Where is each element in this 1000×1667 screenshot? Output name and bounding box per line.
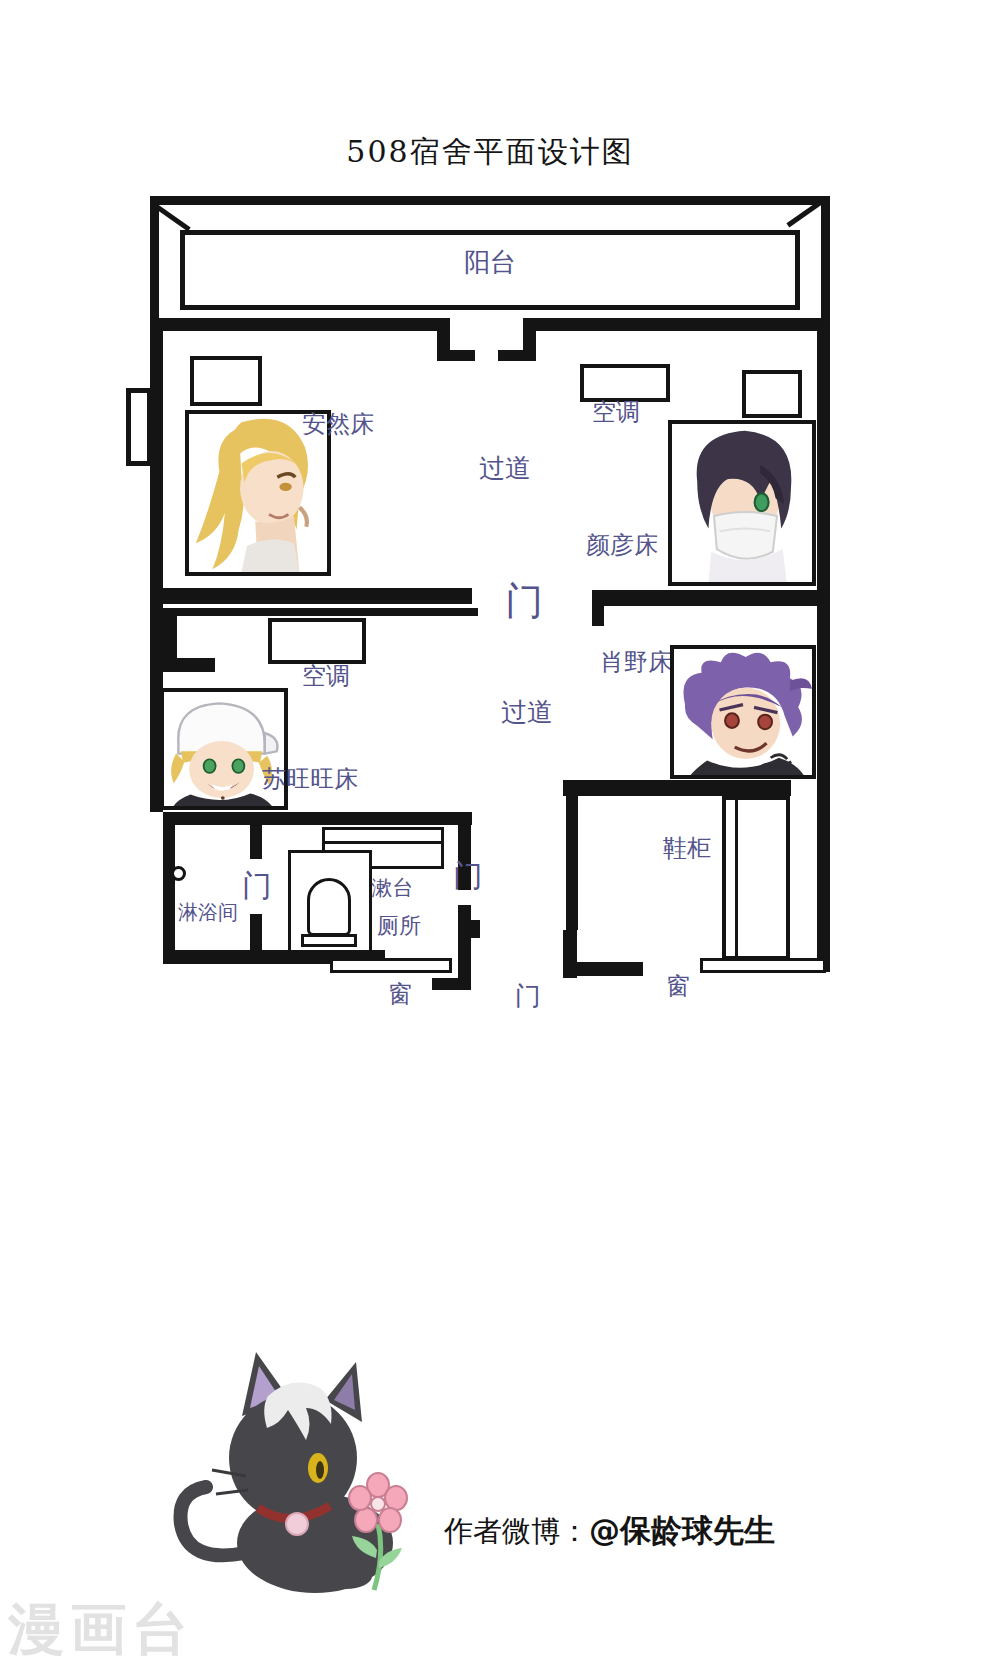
corridor-right-wall [566,796,578,930]
author-credit-prefix: 作者微博： [444,1514,589,1548]
xiaoye-portrait [674,649,812,775]
mid-wall-left [150,588,472,604]
right-outer-wall-lower [817,606,830,972]
balcony-outer-top-wall [150,196,830,205]
top-wall-right [523,318,830,331]
author-credit: 作者微博：@保龄球先生 [444,1510,775,1552]
top-wall-left-stub [437,350,475,361]
balcony-outer-right-wall [821,196,830,324]
balcony-label: 阳台 [464,245,516,280]
top-wall-right-stub [498,350,536,361]
bathroom-hook-circle [171,866,186,881]
corridor-upper-label: 过道 [479,451,531,486]
window-sill-left [330,958,452,973]
shower-room-label: 淋浴间 [178,899,238,926]
bed-xiaoye [670,645,816,779]
yanyan-portrait [672,424,812,582]
mascot-cat [150,1338,430,1593]
bathroom-top-wall [163,812,472,825]
shoe-cabinet-label: 鞋柜 [663,832,711,864]
shower-partition-upper [250,825,262,859]
entrance-jamb-left-notch [471,920,480,938]
toilet-bowl [307,878,351,936]
window-bottom-right-label: 窗 [666,970,690,1002]
left-wall-pillar [126,388,152,466]
entrance-jamb-left-foot [432,978,471,990]
mid-wall-left-inner [150,608,478,616]
shoe-cabinet-inner-line [735,800,738,956]
bathroom-left-wall [163,825,175,960]
cabinet-yanyan [742,370,802,418]
ac-unit-anran [190,356,262,406]
entrance-jamb-right-h [563,962,643,976]
shoe-cabinet [722,796,790,960]
washstand-counter-line [325,841,441,844]
right-outer-wall-upper [817,318,830,590]
toilet-label: 厕所 [377,911,421,941]
lower-left-stub-h [163,658,215,672]
door-main-label: 门 [505,576,543,627]
author-weibo-handle: @保龄球先生 [589,1512,775,1548]
balcony-outer-left-wall [150,196,159,324]
window-sill-right [700,958,826,973]
xiaoye-room-bottom-wall [563,780,791,796]
bed-yanyan-label: 颜彦床 [586,529,658,561]
bed-xiaoye-label: 肖野床 [600,646,672,678]
ac-upper-right-label: 空调 [592,396,640,428]
window-bottom-left-label: 窗 [388,978,412,1010]
mid-wall-right [592,590,830,606]
door-bathroom-label: 门 [242,866,272,907]
ac-lower-left-label: 空调 [302,660,350,692]
bed-yanyan [668,420,816,586]
corridor-lower-label: 过道 [501,695,553,730]
shower-partition-lower [250,914,262,950]
top-wall-left [150,318,450,331]
door-middle-label: 门 [453,856,483,897]
bed-anran-label: 安然床 [302,408,374,440]
ac-unit-su [268,618,366,664]
toilet-base [301,934,357,947]
mid-wall-right-jamb [592,606,604,626]
page-title: 508宿舍平面设计图 [346,132,633,173]
bed-suwangwang-label: 苏旺旺床 [262,763,358,795]
platform-watermark: 漫画台 [8,1592,194,1667]
door-bottom-label: 门 [515,979,541,1014]
comic-page: 508宿舍平面设计图 阳台 安然床 空调 [0,0,1000,1667]
